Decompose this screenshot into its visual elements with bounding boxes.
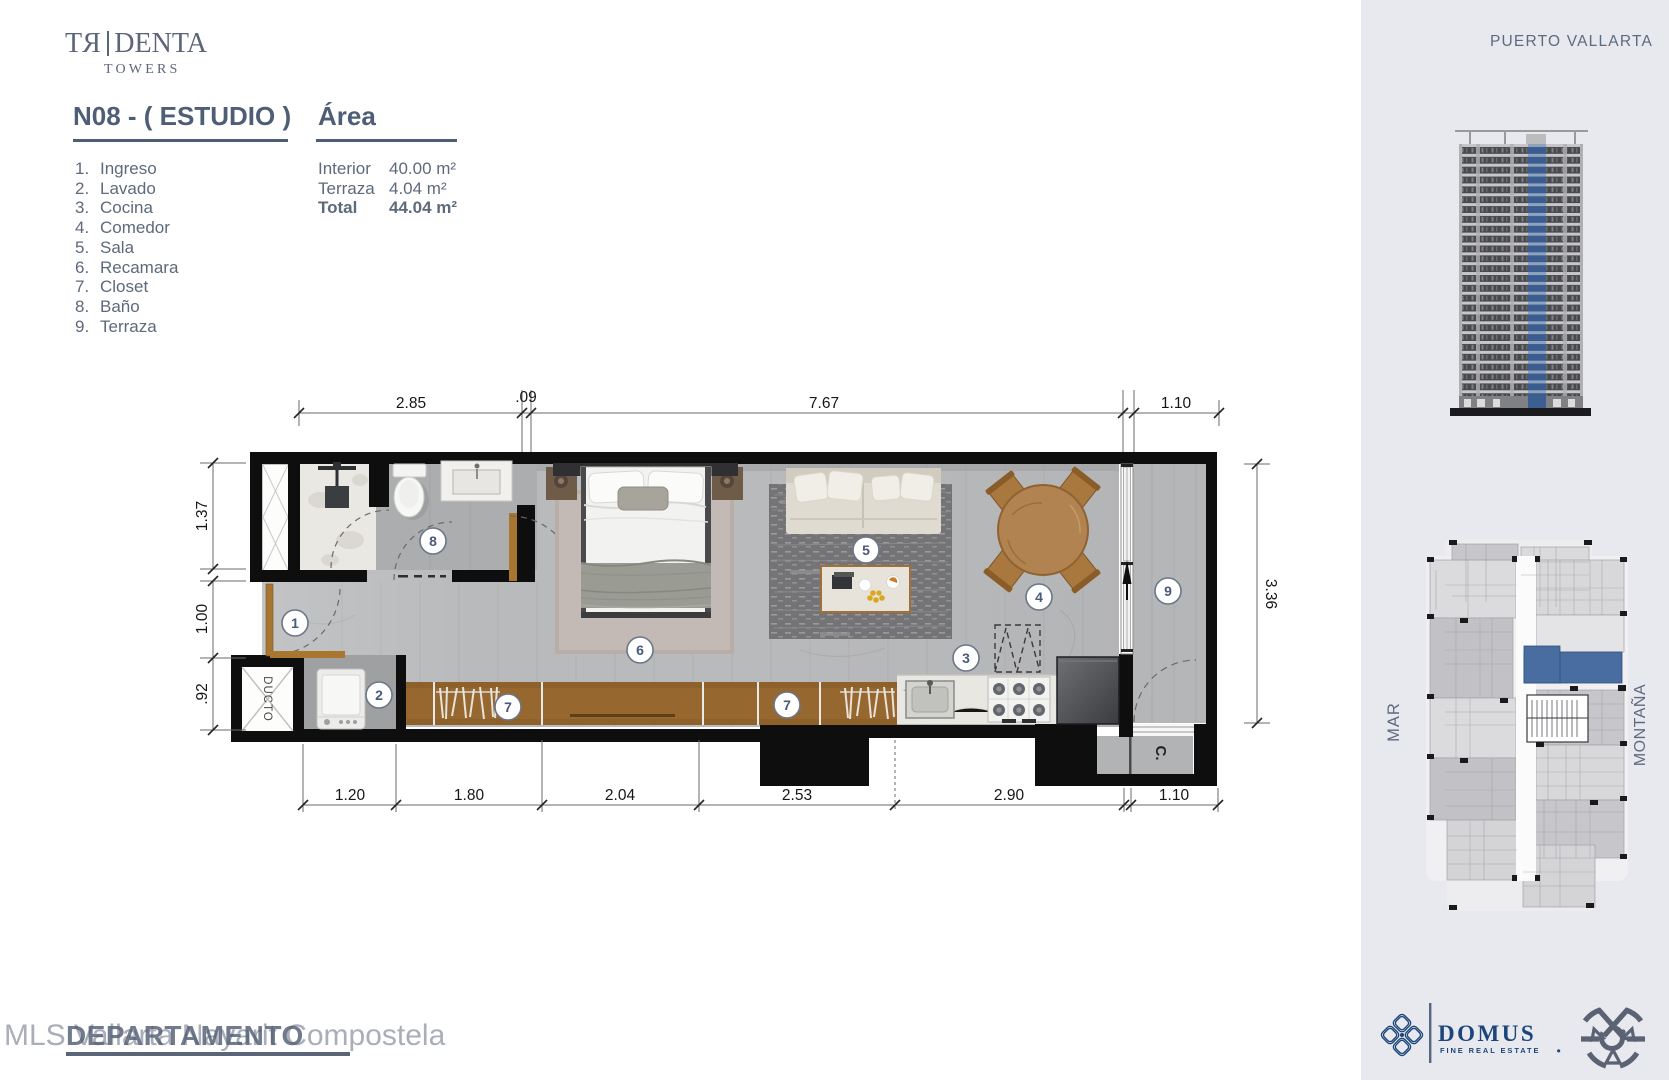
svg-text:DUCTO: DUCTO <box>261 676 273 722</box>
svg-text:.92: .92 <box>194 683 211 705</box>
svg-text:1.80: 1.80 <box>454 787 485 804</box>
svg-text:6: 6 <box>636 642 644 658</box>
svg-text:5: 5 <box>862 542 870 558</box>
svg-text:2.85: 2.85 <box>396 395 426 412</box>
svg-text:1.10: 1.10 <box>1159 787 1190 804</box>
svg-text:4: 4 <box>1035 589 1043 605</box>
svg-text:9: 9 <box>1164 583 1172 599</box>
svg-text:8: 8 <box>429 533 437 549</box>
svg-text:2.90: 2.90 <box>994 787 1025 804</box>
svg-text:2.04: 2.04 <box>605 787 636 804</box>
svg-text:1.10: 1.10 <box>1161 395 1192 412</box>
svg-text:1.00: 1.00 <box>194 604 211 635</box>
svg-text:2.53: 2.53 <box>782 787 812 804</box>
svg-text:C.: C. <box>1152 746 1169 761</box>
svg-text:7: 7 <box>783 697 791 713</box>
svg-text:7: 7 <box>504 699 512 715</box>
svg-text:2: 2 <box>375 687 383 703</box>
svg-text:3.36: 3.36 <box>1262 579 1279 609</box>
svg-text:1: 1 <box>291 615 299 631</box>
svg-text:7.67: 7.67 <box>809 395 839 412</box>
svg-text:3: 3 <box>962 650 970 666</box>
svg-text:.09: .09 <box>515 389 537 406</box>
svg-text:1.37: 1.37 <box>194 501 211 531</box>
svg-text:1.20: 1.20 <box>335 787 366 804</box>
